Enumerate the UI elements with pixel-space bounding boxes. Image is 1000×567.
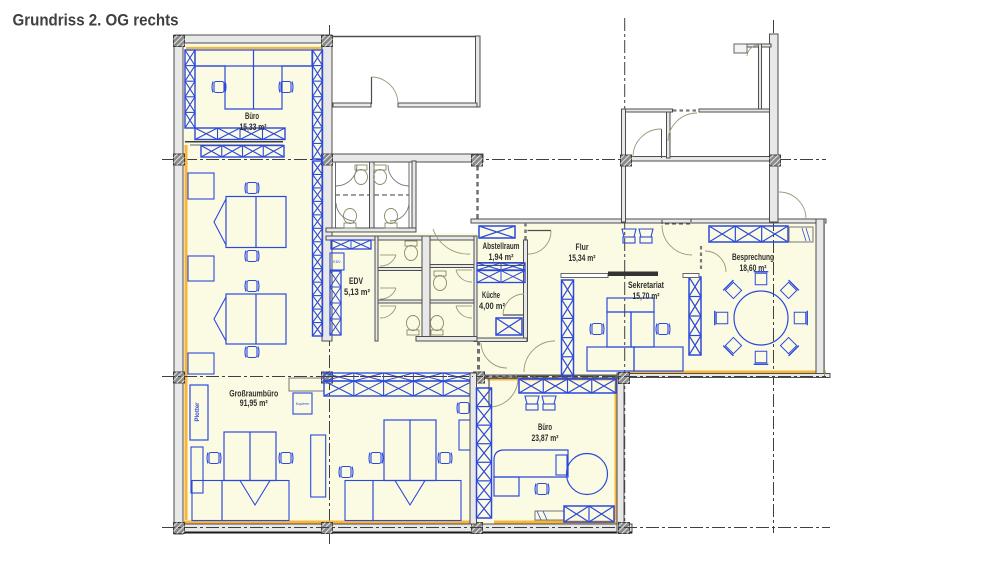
svg-text:1,94 m²: 1,94 m² [489, 252, 514, 262]
svg-text:Büro: Büro [538, 422, 552, 432]
svg-text:15,70 m²: 15,70 m² [633, 291, 660, 301]
svg-text:91,95 m²: 91,95 m² [240, 398, 268, 408]
svg-text:EDV: EDV [349, 276, 363, 286]
svg-text:Besprechung: Besprechung [732, 252, 774, 262]
svg-text:Flur: Flur [576, 242, 589, 252]
svg-text:23,87 m²: 23,87 m² [532, 433, 559, 443]
svg-text:Abstellraum: Abstellraum [483, 241, 520, 251]
svg-text:5,13 m²: 5,13 m² [344, 287, 370, 297]
svg-text:Sekretariat: Sekretariat [628, 280, 664, 290]
svg-text:15,34 m²: 15,34 m² [569, 253, 596, 263]
svg-text:Grundriss 2. OG rechts: Grundriss 2. OG rechts [13, 12, 179, 30]
svg-text:Kopierer: Kopierer [296, 402, 310, 406]
svg-text:18,60 m²: 18,60 m² [740, 263, 767, 273]
svg-text:4,00 m²: 4,00 m² [479, 301, 505, 311]
svg-text:EDV: EDV [333, 260, 341, 264]
svg-text:Küche: Küche [482, 290, 500, 300]
svg-text:15,33 m²: 15,33 m² [240, 122, 267, 132]
svg-text:Großraumbüro: Großraumbüro [229, 388, 278, 398]
svg-text:Büro: Büro [245, 111, 259, 121]
svg-text:Plotter: Plotter [195, 402, 201, 422]
